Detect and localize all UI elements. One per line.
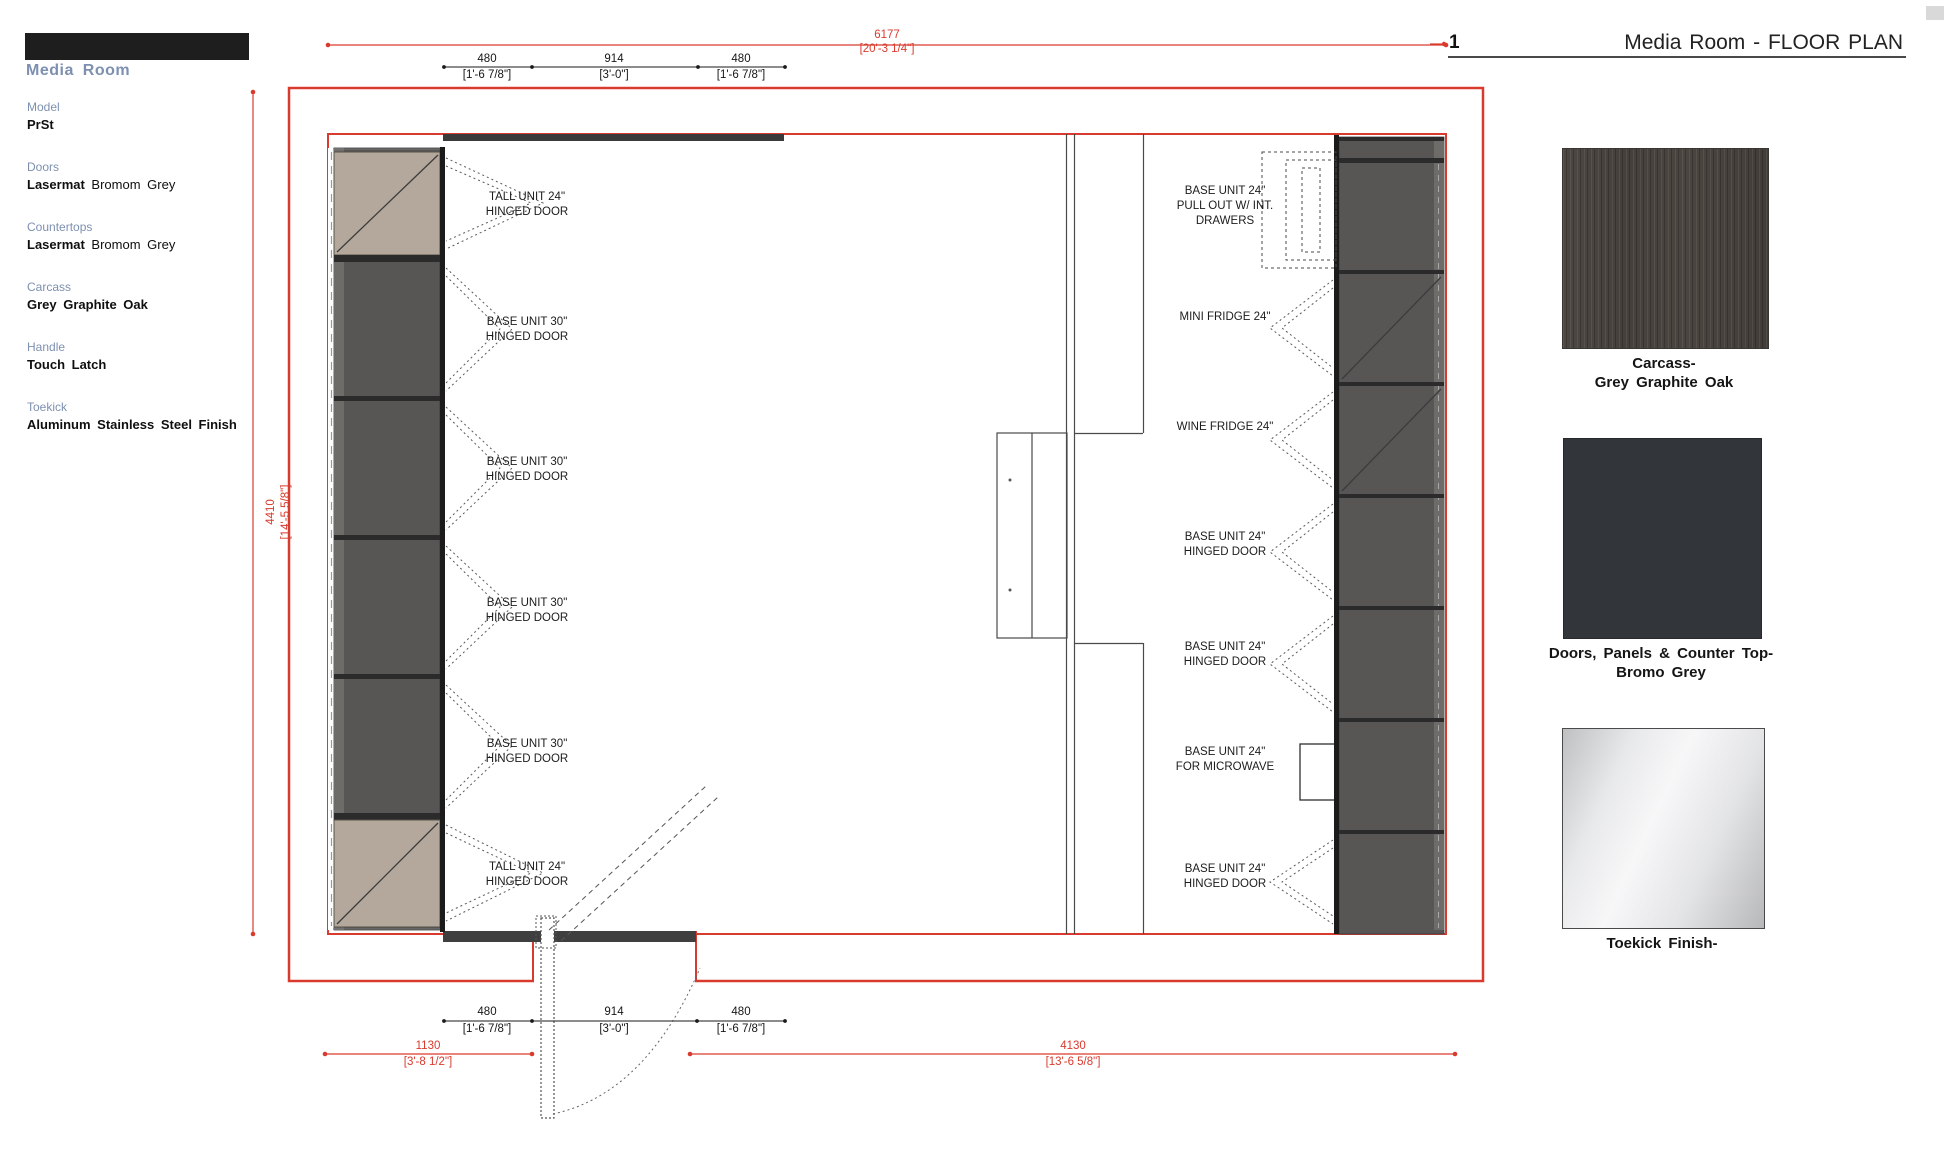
dim-top-seg-2: 914[3'-0"] — [599, 51, 628, 83]
sheet-number: 1 — [1449, 32, 1460, 54]
dim-top-seg-1: 480[1'-6 7/8"] — [463, 51, 511, 83]
label-base-unit-1: BASE UNIT 30"HINGED DOOR — [486, 315, 568, 345]
corner-chip — [1926, 6, 1944, 20]
dim-top-seg-3: 480[1'-6 7/8"] — [717, 51, 765, 83]
label-base-unit-2: BASE UNIT 30"HINGED DOOR — [486, 455, 568, 485]
dim-bottom-seg-3: 480[1'-6 7/8"] — [717, 1004, 765, 1038]
room-walls — [289, 88, 1483, 985]
title-underline — [1448, 56, 1906, 58]
sidebar-header-bar — [25, 33, 249, 60]
label-mini-fridge: MINI FRIDGE 24" — [1180, 310, 1271, 325]
spec-value-doors: Lasermat Bromom Grey — [27, 177, 297, 192]
right-cabinet-run — [1300, 135, 1444, 934]
swatch-toekick-caption: Toekick Finish- — [1606, 934, 1717, 953]
spec-label-handle: Handle — [27, 340, 297, 354]
label-base-unit-3: BASE UNIT 30"HINGED DOOR — [486, 596, 568, 626]
label-pullout-unit: BASE UNIT 24"PULL OUT W/ INT.DRAWERS — [1177, 184, 1274, 229]
floor-plan-sheet: Media Room Model PrSt Doors Lasermat Bro… — [0, 0, 1946, 1170]
center-wall — [997, 134, 1144, 934]
dim-bottom-left: 1130[3'-8 1/2"] — [404, 1038, 452, 1070]
spec-value-carcass: Grey Graphite Oak — [27, 297, 297, 312]
door-swing-arc — [553, 968, 700, 1114]
swatch-carcass — [1562, 148, 1769, 349]
spec-list: Model PrSt Doors Lasermat Bromom Grey Co… — [27, 100, 297, 432]
label-tall-unit-bottom: TALL UNIT 24"HINGED DOOR — [486, 860, 568, 890]
spec-value-handle: Touch Latch — [27, 357, 297, 372]
spec-label-doors: Doors — [27, 160, 297, 174]
label-wine-fridge: WINE FRIDGE 24" — [1177, 420, 1274, 435]
label-base-unit-4: BASE UNIT 30"HINGED DOOR — [486, 737, 568, 767]
dim-overall-width: 6177[20'-3 1/4"] — [860, 28, 915, 56]
spec-value-toekick: Aluminum Stainless Steel Finish — [27, 417, 297, 432]
room-title: Media Room — [26, 62, 130, 80]
sheet-title: Media Room - FLOOR PLAN — [1624, 31, 1903, 55]
dim-bottom-seg-2: 914[3'-0"] — [599, 1004, 628, 1038]
label-base-unit-r2: BASE UNIT 24"HINGED DOOR — [1184, 640, 1266, 670]
swatch-toekick — [1562, 728, 1765, 929]
label-base-unit-r3: BASE UNIT 24"HINGED DOOR — [1184, 862, 1266, 892]
dim-bottom-right: 4130[13'-6 5/8"] — [1046, 1038, 1101, 1070]
swatch-carcass-caption: Carcass-Grey Graphite Oak — [1595, 354, 1734, 392]
spec-label-model: Model — [27, 100, 297, 114]
spec-value-model: PrSt — [27, 117, 297, 132]
label-base-unit-r1: BASE UNIT 24"HINGED DOOR — [1184, 530, 1266, 560]
microwave-symbol — [1300, 744, 1338, 800]
left-cabinet-run — [328, 147, 445, 932]
spec-label-carcass: Carcass — [27, 280, 297, 294]
swatch-doors-panels — [1563, 438, 1762, 639]
dim-bottom-seg-1: 480[1'-6 7/8"] — [463, 1004, 511, 1038]
label-microwave-unit: BASE UNIT 24"FOR MICROWAVE — [1176, 745, 1274, 775]
spec-label-countertops: Countertops — [27, 220, 297, 234]
label-tall-unit-top: TALL UNIT 24"HINGED DOOR — [486, 190, 568, 220]
swatch-doors-panels-caption: Doors, Panels & Counter Top-Bromo Grey — [1549, 644, 1773, 682]
spec-value-countertops: Lasermat Bromom Grey — [27, 237, 297, 252]
spec-label-toekick: Toekick — [27, 400, 297, 414]
dim-overall-height: 4410[14'-5 5/8"] — [264, 485, 294, 540]
